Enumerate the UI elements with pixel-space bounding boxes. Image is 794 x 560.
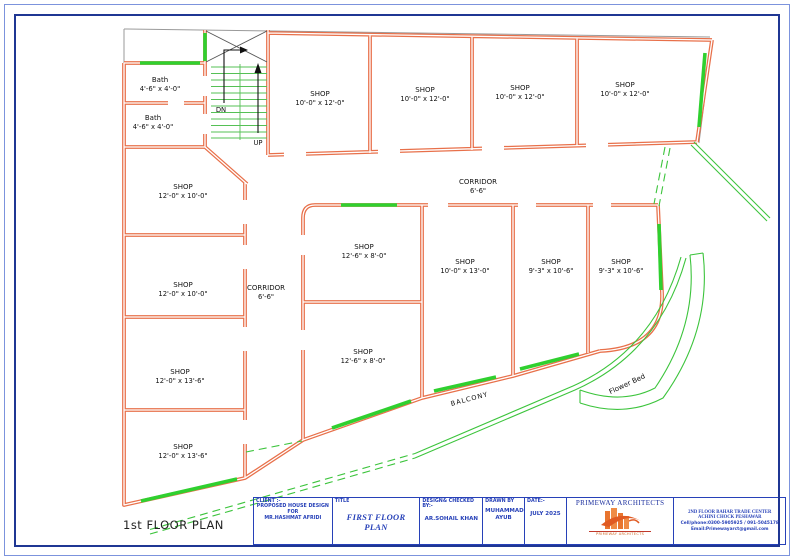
firm-logo-graphic [585, 507, 655, 531]
firm-logo [567, 507, 674, 531]
title-block-firm-cell: PRIMEWAY ARCHITECTS PRIMEWAY ARCHITECTS [567, 498, 675, 544]
room-label: SHOP [510, 84, 529, 92]
room-size: 12'-0" x 13'-6" [155, 377, 204, 385]
room-size: 9'-3" x 10'-6" [599, 267, 644, 275]
stair-treads [211, 64, 267, 140]
title-block-title-cell: TITLE FIRST FLOOR PLAN [333, 498, 421, 544]
corridor-label: CORRIDOR [459, 178, 497, 186]
room-label: Bath [152, 76, 168, 84]
stairs-up-label: UP [253, 139, 262, 147]
plan-title: 1st FLOOR PLAN [123, 518, 224, 532]
room-size: 10'-0" x 12'-0" [495, 93, 544, 101]
date-value: JULY 2025 [527, 511, 564, 517]
room-label: SHOP [170, 368, 189, 376]
drawing-title: FIRST FLOOR PLAN [335, 512, 418, 532]
room-label: SHOP [354, 243, 373, 251]
room-size: 10'-0" x 12'-0" [600, 90, 649, 98]
room-label: SHOP [173, 443, 192, 451]
stair-landing-winders [206, 31, 267, 62]
room-label: Bath [145, 114, 161, 122]
room-size: 10'-0" x 12'-0" [400, 95, 449, 103]
room-label: SHOP [611, 258, 630, 266]
title-block: CLIENT :- PROPOSED HOUSE DESIGN FOR MR.H… [253, 497, 786, 545]
firm-name: PRIMEWAY ARCHITECTS [567, 499, 674, 507]
room-label: SHOP [455, 258, 474, 266]
client-line: MR.HASHMAT AFRIDI [256, 516, 330, 522]
date-label: DATE:- [527, 499, 564, 504]
room-size: 12'-6" x 8'-0" [341, 357, 386, 365]
balcony-edge-solid [415, 142, 770, 458]
drawing-sheet: Bath 4'-6" x 4'-0" Bath 4'-6" x 4'-0" SH… [0, 0, 794, 560]
corridor-size: 6'-6" [470, 187, 486, 195]
room-size: 12'-6" x 8'-0" [342, 252, 387, 260]
firm-email: Email:Primewayarct@gmail.com [676, 527, 783, 533]
title-block-date-cell: DATE:- JULY 2025 [525, 498, 567, 544]
room-labels: Bath 4'-6" x 4'-0" Bath 4'-6" x 4'-0" SH… [133, 76, 650, 460]
balcony-label: BALCONY [450, 390, 489, 408]
corridor-label: CORRIDOR [247, 284, 285, 292]
title-block-contact-cell: 2ND FLOOR BAHAR TRADE CENTER ACHINI CHOC… [674, 498, 785, 544]
stairs-down-label: DN [216, 106, 226, 114]
title-block-drawn-cell: DRAWN BY MUHAMMAD AYUB [483, 498, 525, 544]
room-label: SHOP [173, 183, 192, 191]
room-label: SHOP [353, 348, 372, 356]
flower-bed-band [580, 253, 704, 409]
corridor-size: 6'-6" [258, 293, 274, 301]
title-label: TITLE [335, 499, 418, 504]
room-size: 10'-0" x 12'-0" [295, 99, 344, 107]
room-label: SHOP [615, 81, 634, 89]
room-label: SHOP [173, 281, 192, 289]
drawn-label: DRAWN BY [485, 499, 522, 504]
room-size: 4'-6" x 4'-0" [133, 123, 174, 131]
room-label: SHOP [541, 258, 560, 266]
title-block-client-cell: CLIENT :- PROPOSED HOUSE DESIGN FOR MR.H… [254, 498, 333, 544]
title-block-design-cell: DESIGN& CHECKED BY:- AR.SOHAIL KHAN [420, 498, 483, 544]
stair-direction-arrows [224, 47, 262, 134]
room-size: 12'-0" x 13'-6" [158, 452, 207, 460]
designed-label: DESIGN& CHECKED BY:- [422, 499, 480, 509]
drawn-by-line: MUHAMMAD [485, 508, 522, 515]
room-label: SHOP [310, 90, 329, 98]
drawn-by-line: AYUB [485, 515, 522, 522]
room-size: 9'-3" x 10'-6" [529, 267, 574, 275]
room-size: 4'-6" x 4'-0" [140, 85, 181, 93]
floor-plan-drawing: Bath 4'-6" x 4'-0" Bath 4'-6" x 4'-0" SH… [0, 0, 794, 560]
room-size: 12'-0" x 10'-0" [158, 290, 207, 298]
firm-logo-caption: PRIMEWAY ARCHITECTS [589, 531, 651, 537]
room-size: 10'-0" x 13'-0" [440, 267, 489, 275]
designed-by: AR.SOHAIL KHAN [422, 516, 480, 522]
flower-bed-label: Flower Bed [608, 372, 647, 396]
room-label: SHOP [415, 86, 434, 94]
room-size: 12'-0" x 10'-0" [158, 192, 207, 200]
